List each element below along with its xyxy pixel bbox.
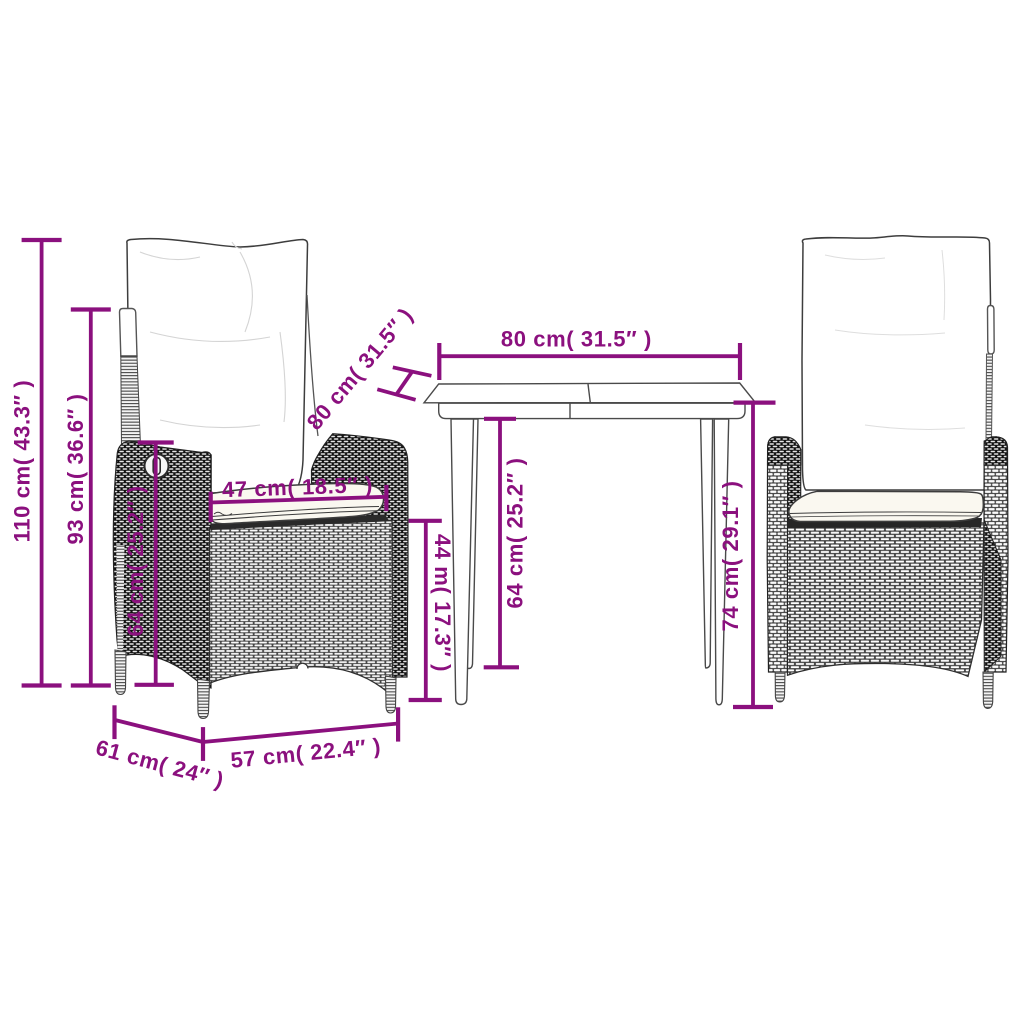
svg-text:74 cm( 29.1″ ): 74 cm( 29.1″ ) [718, 480, 743, 631]
svg-text:47 cm( 18.5″ ): 47 cm( 18.5″ ) [222, 472, 374, 502]
svg-text:110 cm( 43.3″ ): 110 cm( 43.3″ ) [10, 380, 35, 543]
svg-text:80 cm( 31.5″ ): 80 cm( 31.5″ ) [501, 326, 652, 351]
svg-text:64 cm( 25.2″ ): 64 cm( 25.2″ ) [123, 485, 148, 636]
svg-text:93 cm( 36.6″ ): 93 cm( 36.6″ ) [63, 393, 88, 544]
svg-text:44 m( 17.3″ ): 44 m( 17.3″ ) [430, 534, 455, 672]
svg-text:64 cm( 25.2″ ): 64 cm( 25.2″ ) [503, 457, 528, 608]
